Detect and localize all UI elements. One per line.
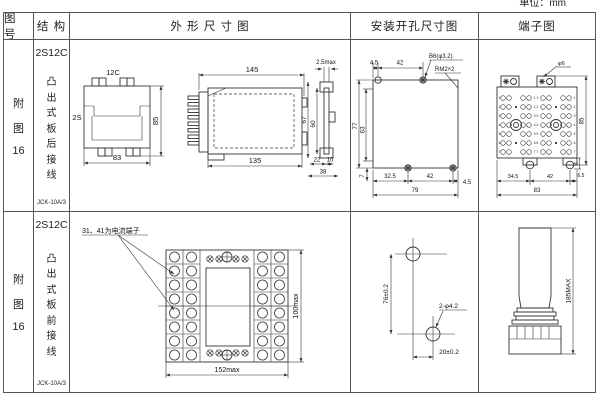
dim-mount-42: 42 — [397, 61, 404, 67]
label-hole-dia: 2-φ4.2 — [439, 303, 458, 310]
header-outline: 外 形 尺 寸 图 — [70, 13, 351, 40]
structure-code: JCK-10A/3 — [37, 200, 66, 206]
header-structure: 结 构 — [34, 13, 70, 40]
terminal-row-num: 6 — [574, 141, 576, 145]
figure-no-char: 附 — [13, 271, 24, 287]
terminal-row-num: 7 — [574, 150, 576, 154]
header-mounting: 安装开孔尺寸图 — [351, 13, 479, 40]
dim-mount-4.5: 4.5 — [370, 61, 379, 67]
terminal-center-num: 1 1 — [534, 96, 539, 100]
dim-edge-38: 38 — [320, 170, 327, 176]
structure-type: 凸出式板前接线 — [45, 252, 58, 361]
dim-row2-height: 100max — [293, 293, 300, 318]
figure-no-char: 图 — [13, 120, 24, 136]
terminal-row-num: 5 — [574, 132, 576, 136]
terminal-center-num: 3 3 — [534, 114, 539, 118]
dim-edge-60: 60 — [310, 120, 317, 128]
catalog-sheet: 单位：mm 图 号 结 构 外 形 尺 寸 图 — [0, 0, 600, 400]
terminal-row-num: 7 — [499, 150, 501, 154]
dim-term-42: 42 — [547, 174, 553, 180]
dim-edge-22: 22 — [314, 158, 321, 164]
figure-no-char: 附 — [13, 95, 24, 111]
row2-outline-cell: 31、41为电流端子 — [70, 212, 351, 392]
structure-type: 凸出式板后接线 — [45, 75, 58, 184]
dim-hole-spacing-h: 20±0.2 — [439, 349, 459, 356]
outline-drawing-row2: 31、41为电流端子 — [70, 212, 349, 390]
structure-model: 2S12C — [35, 219, 67, 231]
note-current-terminals: 31、41为电流端子 — [82, 226, 140, 235]
terminal-center-num: 5 5 — [534, 132, 539, 136]
figure-no-char: 图 — [13, 296, 24, 312]
dim-mount-63: 63 — [360, 126, 367, 134]
front-view-row2: 152max 100max — [158, 250, 304, 378]
terminal-row-num: 5 — [499, 132, 501, 136]
dim-mount-77: 77 — [352, 122, 359, 130]
dim-term-4: 4 — [574, 162, 580, 165]
dim-mount-79: 79 — [412, 188, 419, 194]
dim-hole-spacing-v: 76±0.2 — [383, 284, 390, 304]
dim-edge-67: 67 — [301, 116, 308, 124]
mounting-drawing-row2: 76±0.2 2-φ4.2 20±0.2 — [351, 212, 477, 390]
row1-figure-no: 附 图 16 — [4, 40, 34, 212]
dim-mount-32.5: 32.5 — [384, 174, 396, 180]
dim-term-34.5: 34.5 — [508, 174, 519, 180]
terminal-row-num: 2 — [499, 105, 501, 109]
row2-terminal-cell: 185MAX — [479, 212, 595, 392]
terminal-row-num: 4 — [499, 123, 501, 127]
dim-mount-42b: 42 — [427, 174, 434, 180]
header-figure-no: 图 号 — [4, 13, 34, 40]
dim-term-83: 83 — [534, 188, 541, 194]
terminal-center-num: 6 6 — [534, 141, 539, 145]
dim-overall-height: 185MAX — [566, 278, 573, 304]
row1-structure: 2S12C 凸出式板后接线 JCK-10A/3 — [34, 40, 70, 212]
mounting-drawing-row1: 4.5 42 B6(φ3.2) RM2×2 77 63 7 — [351, 40, 477, 210]
dim-edge-top: 2.5max — [316, 60, 336, 66]
row1-terminal-cell: 1 2 3 4 5 6 7 1 2 3 4 5 6 7 1 1 2 2 3 3 — [479, 40, 595, 212]
front-view: 12C 2S 85 83 — [72, 68, 164, 166]
row1-outline-cell: 12C 2S 85 83 — [70, 40, 351, 212]
terminal-row-num: 1 — [499, 96, 501, 100]
edge-view: 2.5max 67 60 22 10 38 — [301, 60, 338, 176]
row2-structure: 2S12C 凸出式板前接线 JCK-10A/3 — [34, 212, 70, 392]
unit-label: 单位：mm — [519, 0, 566, 9]
terminal-drawing-row1: 1 2 3 4 5 6 7 1 2 3 4 5 6 7 1 1 2 2 3 3 — [479, 40, 595, 210]
terminal-row-num: 1 — [574, 96, 576, 100]
terminal-row-num: 3 — [499, 114, 501, 118]
row2-figure-no: 附 图 16 — [4, 212, 34, 392]
side-view: 145 135 — [188, 65, 307, 168]
label-hole-spec: B6(φ3.2) — [429, 54, 453, 60]
figure-no-num: 16 — [12, 145, 24, 157]
terminal-row-num: 2 — [574, 105, 576, 109]
outline-drawing-row1: 12C 2S 85 83 — [70, 40, 349, 210]
terminal-plate: 1 2 3 4 5 6 7 1 2 3 4 5 6 7 1 1 2 2 3 3 — [497, 61, 588, 198]
dim-edge-10: 10 — [327, 158, 334, 164]
terminal-drawing-row2: 185MAX — [479, 212, 595, 390]
dim-front-top: 12C — [106, 68, 120, 77]
dim-side-bottom: 135 — [249, 156, 262, 165]
dim-term-85: 85 — [580, 117, 586, 124]
mounting-panel: 4.5 42 B6(φ3.2) RM2×2 77 63 7 — [352, 54, 472, 198]
structure-code: JCK-10A/3 — [37, 381, 66, 387]
dim-row2-width: 152max — [215, 367, 240, 374]
dim-side-top: 145 — [246, 65, 259, 74]
dim-mount-4.5b: 4.5 — [463, 180, 472, 186]
label-screw-dia: φ6 — [558, 61, 565, 67]
mounting-holes-row2: 76±0.2 2-φ4.2 20±0.2 — [383, 238, 467, 360]
terminal-row-num: 3 — [574, 114, 576, 118]
dim-front-height: 85 — [151, 117, 160, 125]
dim-front-width: 83 — [113, 153, 121, 162]
row1-mounting-cell: 4.5 42 B6(φ3.2) RM2×2 77 63 7 — [351, 40, 479, 212]
spec-table: 图 号 结 构 外 形 尺 寸 图 安装开孔尺寸图 端子图 附 图 16 2S1… — [3, 12, 596, 393]
terminal-row-num: 6 — [499, 141, 501, 145]
figure-no-num: 16 — [12, 321, 24, 333]
terminal-center-num: 4 4 — [534, 123, 539, 127]
terminal-center-num: 7 7 — [534, 150, 539, 154]
terminal-center-num: 2 2 — [534, 105, 539, 109]
structure-model: 2S12C — [35, 47, 67, 59]
row2-mounting-cell: 76±0.2 2-φ4.2 20±0.2 — [351, 212, 479, 392]
label-thread-spec: RM2×2 — [435, 67, 455, 73]
dim-front-left: 2S — [72, 113, 81, 122]
header-terminal: 端子图 — [479, 13, 595, 40]
dim-term-6.5: 6.5 — [578, 173, 585, 179]
dim-mount-7: 7 — [360, 174, 366, 178]
relay-side-silhouette: 185MAX — [509, 228, 576, 354]
terminal-row-num: 4 — [574, 123, 576, 127]
